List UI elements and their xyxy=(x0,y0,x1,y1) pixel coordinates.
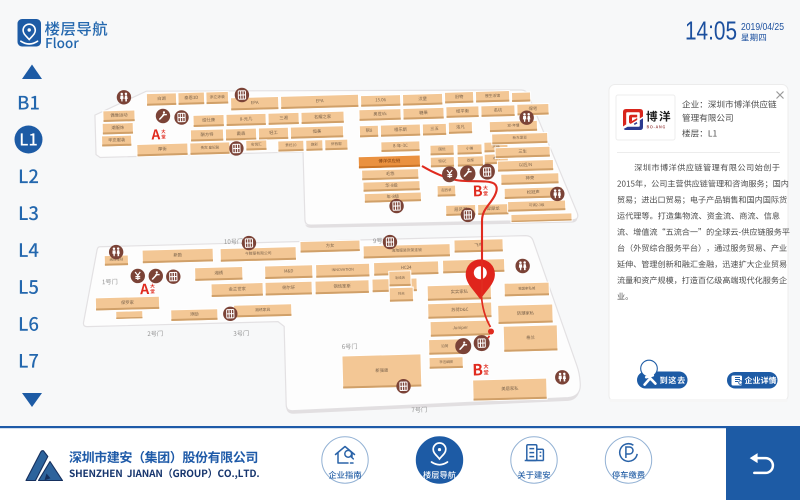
svg-text:14:05: 14:05 xyxy=(685,18,737,46)
svg-text:2019/04/25: 2019/04/25 xyxy=(741,22,784,33)
